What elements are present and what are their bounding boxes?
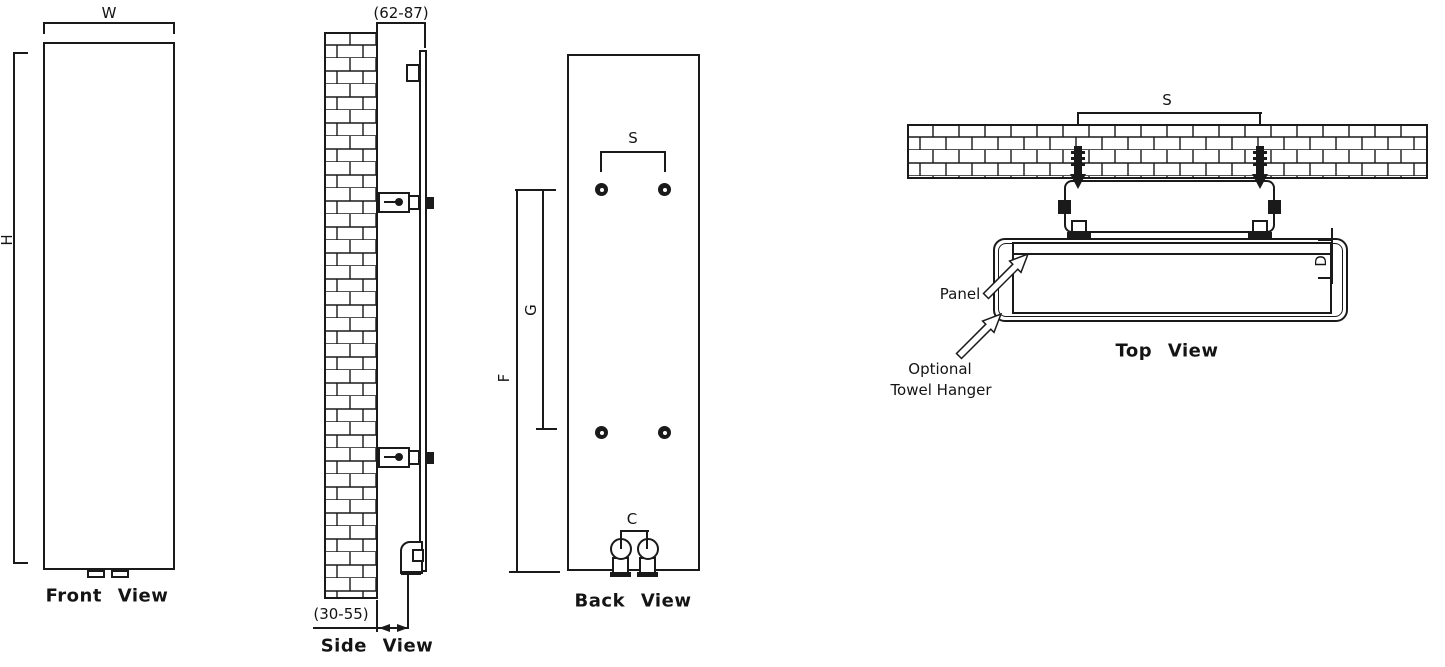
top-bracket-foot-left [1071,220,1087,233]
top-bracket-foot-right [1252,220,1268,233]
back-f-tick-bottom [509,571,560,573]
side-clearance-tick-left [376,22,378,47]
front-height-dimension-label: H [0,234,16,245]
top-frame-adjuster-right [1268,200,1281,214]
side-offset-arrow-right-icon [397,624,408,632]
back-f-dimension-label: F [495,374,513,383]
back-g-tick-bottom [536,428,557,430]
mounting-hole-bottom-left [595,426,608,439]
side-lower-bracket-screw-head [395,453,403,461]
top-depth-tick-top [1318,239,1333,241]
back-pipe-connection-right [637,538,659,560]
top-wall-anchor-right-icon [1250,146,1270,190]
top-bracket-frame [1064,180,1275,233]
back-view-title: Back View [575,591,692,612]
front-height-tick-bottom [13,562,28,564]
top-view-title: Top View [1115,341,1218,362]
top-wall-anchor-left-icon [1068,146,1088,190]
towel-hanger-callout-line1: Optional [908,360,971,378]
mounting-hole-top-left [595,183,608,196]
back-pipe-cap-left [610,572,631,577]
front-pipe-stub-right [111,570,129,578]
towel-hanger-callout-line2: Towel Hanger [890,381,991,399]
side-lower-bracket-sleeve [408,450,420,465]
front-pipe-stub-left [87,570,105,578]
back-span-tick-right [664,151,666,172]
side-upper-bracket-sleeve [408,195,420,210]
back-connection-tick-left [620,531,622,549]
back-span-tick-left [600,151,602,172]
side-panel-profile [419,50,427,572]
mounting-hole-top-right [658,183,671,196]
top-depth-dimension-line [1331,228,1333,284]
back-shared-tick-top [515,189,556,191]
side-pipe-elbow-cap [401,571,421,575]
side-clearance-dimension-label: (62-87) [373,4,428,22]
side-wall-brick-section [324,32,378,599]
front-view-title: Front View [46,586,169,607]
back-f-dimension-line [516,190,518,573]
back-g-dimension-label: G [522,304,540,316]
back-pipe-cap-right [637,572,658,577]
top-frame-adjuster-left [1058,200,1071,214]
back-connection-tick-right [646,531,648,549]
panel-callout-label: Panel [940,285,980,303]
back-bracket-span-line [601,151,665,153]
side-offset-arrow-left-icon [379,624,390,632]
towel-hanger-callout-arrow-icon [953,312,1003,362]
panel-callout-arrow-icon [980,252,1030,302]
side-clearance-tick-right [424,22,426,48]
side-view-title: Side View [321,636,434,657]
top-panel-face-line [1014,253,1330,255]
mounting-hole-bottom-right [658,426,671,439]
side-upper-bracket-screw-head [395,198,403,206]
top-wall-brick-section [907,124,1428,179]
back-connection-span-line [620,530,649,532]
technical-drawing-canvas: W H Front View (62-87) (30-55) Side View… [0,0,1445,667]
front-width-tick-left [43,22,45,34]
back-bracket-span-label: S [628,129,638,147]
back-g-dimension-line [542,190,544,430]
side-upper-bracket-clip [426,197,434,209]
side-pipe-valve [412,549,424,562]
back-connection-span-label: C [627,510,637,528]
side-pipe-drop-line [407,575,409,628]
front-panel-outline [43,42,175,570]
side-clearance-dimension-line [377,22,426,24]
front-width-dimension-line [43,22,175,24]
top-bracket-span-line [1077,112,1262,114]
top-depth-dimension-label: D [1312,255,1330,267]
front-width-dimension-label: W [102,4,117,22]
side-pipe-offset-dimension-label: (30-55) [313,605,368,623]
side-offset-dimension-line [313,627,409,629]
front-height-dimension-line [13,52,15,564]
front-width-tick-right [173,22,175,34]
front-height-tick-top [13,52,28,54]
side-lower-bracket-clip [426,452,434,464]
side-top-hook-bracket [406,64,420,82]
top-bracket-span-label: S [1162,91,1172,109]
top-depth-tick-bottom [1318,277,1333,279]
